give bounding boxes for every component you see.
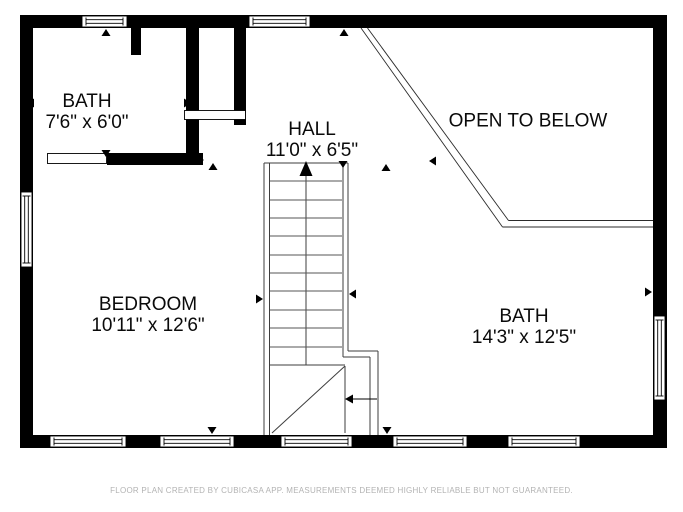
arrow-marker-icon [429,157,436,166]
room-label-bedroom: BEDROOM 10'11" x 12'6" [91,294,204,336]
wall-top-stub [131,28,141,55]
window [160,436,234,447]
staircase [264,163,378,435]
room-dimensions: 11'0" x 6'5" [266,140,358,161]
room-dimensions: 10'11" x 12'6" [91,315,204,336]
arrow-marker-icon [382,164,391,171]
arrow-marker-icon [256,295,263,304]
room-label-bath-upper-left: BATH 7'6" x 6'0" [45,91,128,133]
floor-plan-drawing [0,0,683,512]
room-name: OPEN TO BELOW [449,111,608,132]
floor-plan-page: BATH 7'6" x 6'0" HALL 11'0" x 6'5" OPEN … [0,0,683,512]
wall-bath-bottom [107,153,203,165]
arrow-marker-icon [209,163,218,170]
window [281,436,352,447]
room-name: BATH [45,91,128,112]
arrow-marker-icon [383,427,392,434]
arrow-marker-icon [349,290,356,299]
window [82,16,127,27]
arrow-marker-icon [208,427,217,434]
arrow-marker-icon [102,29,111,36]
window [21,192,32,267]
room-name: HALL [266,119,358,140]
stair-landing-diagonal [272,366,345,433]
window [654,316,665,400]
window [50,436,126,447]
closet-sliding-door [185,111,246,120]
arrow-marker-icon [645,288,652,297]
room-name: BEDROOM [91,294,204,315]
room-label-hall: HALL 11'0" x 6'5" [266,119,358,161]
stair-door-swing-arrow-icon [345,395,377,404]
room-label-open-to-below: OPEN TO BELOW [449,111,608,132]
room-label-bath-right: BATH 14'3" x 12'5" [472,306,576,348]
window [249,16,310,27]
bath-sliding-door [48,154,107,164]
room-name: BATH [472,306,576,327]
footer-disclaimer: FLOOR PLAN CREATED BY CUBICASA APP. MEAS… [0,486,683,495]
wall-bath-closet-left [186,28,199,163]
measurement-arrow-markers [27,29,652,434]
window [508,436,580,447]
room-dimensions: 7'6" x 6'0" [45,112,128,133]
room-dimensions: 14'3" x 12'5" [472,327,576,348]
arrow-marker-icon [339,161,348,168]
window [393,436,467,447]
arrow-marker-icon [340,29,349,36]
